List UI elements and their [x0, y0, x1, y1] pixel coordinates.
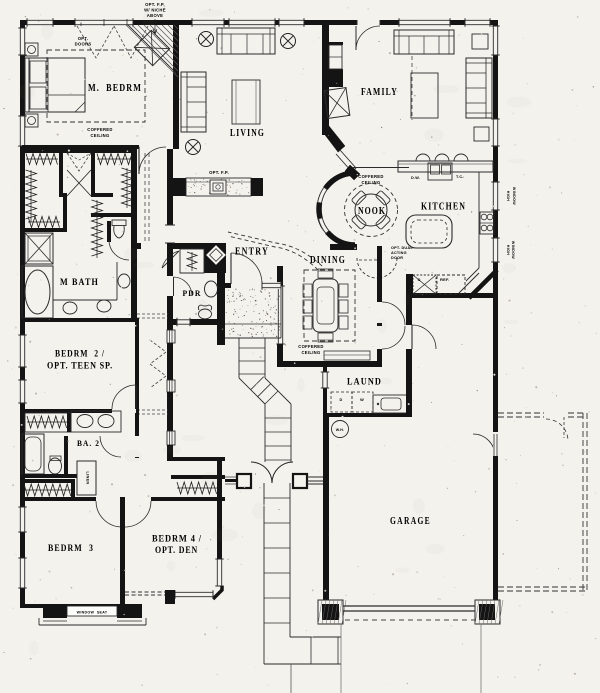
svg-text:COFFERED: COFFERED [358, 174, 383, 179]
svg-text:HIGH: HIGH [506, 191, 510, 202]
svg-text:W: W [360, 398, 364, 402]
svg-text:LIVING: LIVING [230, 128, 265, 139]
svg-text:WINDOW: WINDOW [512, 187, 516, 205]
svg-text:OPT. DEN: OPT. DEN [155, 546, 198, 556]
svg-text:BEDRM 2 /: BEDRM 2 / [55, 350, 105, 360]
svg-text:BA. 2: BA. 2 [77, 438, 100, 448]
svg-text:REF.: REF. [440, 277, 449, 282]
svg-text:ENTRY: ENTRY [235, 247, 269, 258]
svg-text:M. BEDRM: M. BEDRM [88, 83, 142, 94]
svg-text:WINDOW SEAT: WINDOW SEAT [77, 611, 108, 615]
svg-text:M BATH: M BATH [60, 278, 99, 288]
svg-text:O: O [418, 278, 421, 282]
svg-text:OPT. F.P.: OPT. F.P. [209, 170, 229, 175]
svg-text:DOOR: DOOR [391, 256, 403, 260]
svg-text:COFFERED: COFFERED [298, 344, 323, 349]
svg-text:D: D [340, 398, 343, 402]
svg-text:ACTING: ACTING [391, 251, 407, 255]
svg-text:OPT. TEEN SP.: OPT. TEEN SP. [47, 362, 113, 372]
svg-text:OPT. F.P.: OPT. F.P. [145, 2, 165, 7]
svg-text:CEILING: CEILING [361, 180, 380, 185]
svg-text:LINEN: LINEN [86, 472, 90, 485]
svg-text:BEDRM 3: BEDRM 3 [48, 544, 94, 554]
svg-text:GARAGE: GARAGE [390, 516, 431, 527]
svg-text:WINDOW: WINDOW [511, 241, 515, 259]
svg-text:W.H.: W.H. [336, 428, 345, 432]
svg-text:T.C.: T.C. [456, 175, 464, 179]
svg-text:OPT. DUAL: OPT. DUAL [391, 246, 413, 250]
svg-text:CEILING: CEILING [90, 133, 109, 138]
svg-text:DOORS: DOORS [75, 42, 92, 47]
svg-text:BEDRM 4 /: BEDRM 4 / [152, 535, 202, 545]
svg-text:LAUND: LAUND [347, 378, 382, 388]
svg-text:NOOK: NOOK [358, 206, 386, 217]
svg-text:HIGH: HIGH [506, 245, 510, 256]
svg-text:D.W.: D.W. [411, 176, 420, 180]
svg-text:COFFERED: COFFERED [87, 127, 112, 132]
svg-text:CEILING: CEILING [301, 350, 320, 355]
svg-text:FAMILY: FAMILY [361, 87, 398, 98]
svg-text:OPT.: OPT. [78, 36, 89, 41]
